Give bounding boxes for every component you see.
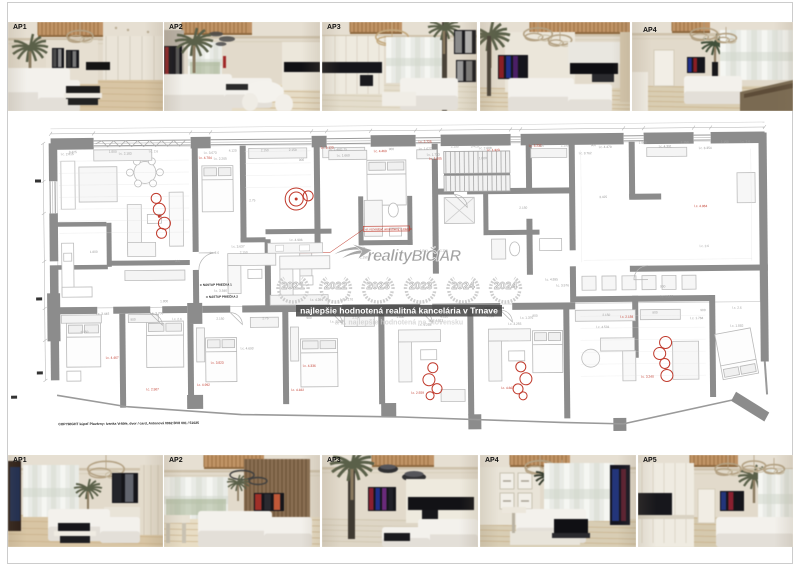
svg-text:l.c. 4.813: l.c. 4.813 [430,319,443,323]
svg-text:el. rozvádzač umiestnený v zrk: el. rozvádzač umiestnený v zrkadle [365,227,412,231]
svg-text:900: 900 [175,259,181,263]
svg-text:l.c. 4.391: l.c. 4.391 [659,144,672,148]
svg-text:2.75: 2.75 [249,198,255,202]
svg-text:l.c. 3.846: l.c. 3.846 [214,289,227,293]
svg-text:l.c. 4.467: l.c. 4.467 [106,356,119,360]
svg-text:900: 900 [306,316,312,320]
svg-text:900: 900 [299,158,305,162]
svg-text:2.150: 2.150 [352,315,360,319]
svg-text:l.c. 1.162: l.c. 1.162 [660,294,673,298]
svg-text:l.c. 3.448: l.c. 3.448 [96,312,109,316]
svg-text:COPYRIGHT kúpeľ Plavárny: Ivan: COPYRIGHT kúpeľ Plavárny: Ivanka Vráble,… [58,421,199,426]
svg-text:l.c. 1.660: l.c. 1.660 [337,153,350,157]
svg-text:◄ SMER VÝŢAH: ◄ SMER VÝŢAH [480,305,504,310]
svg-text:l.c. 2.205: l.c. 2.205 [214,157,227,161]
svg-text:4.120: 4.120 [486,314,494,318]
svg-text:2.150: 2.150 [451,144,459,148]
svg-text:l.c. 3.354: l.c. 3.354 [699,146,712,150]
svg-text:l.c. 1.220: l.c. 1.220 [330,320,343,324]
svg-text:l.c. 2.6: l.c. 2.6 [210,251,220,255]
svg-text:900: 900 [700,308,706,312]
svg-text:l.c. 4.170: l.c. 4.170 [340,297,353,301]
svg-text:l.c. 2.6: l.c. 2.6 [172,317,182,321]
svg-text:2.150: 2.150 [216,317,224,321]
svg-text:l.c. 4.984: l.c. 4.984 [694,204,707,208]
svg-text:l.c. 1.605: l.c. 1.605 [429,157,442,161]
svg-text:1.800: 1.800 [479,156,487,160]
svg-text:l.c. 4.992: l.c. 4.992 [197,383,210,387]
svg-text:l.c. 3.123: l.c. 3.123 [321,146,334,150]
svg-text:l.c. 2.6: l.c. 2.6 [741,140,751,144]
svg-text:2.75: 2.75 [262,316,268,320]
svg-text:3.425: 3.425 [599,195,607,199]
svg-text:1.800: 1.800 [396,315,404,319]
svg-text:l.c. 1.784: l.c. 1.784 [690,316,703,320]
svg-text:l.c. 1.323: l.c. 1.323 [487,148,500,152]
svg-text:l.c. 3.823: l.c. 3.823 [211,361,224,365]
svg-text:l.c. 1.376: l.c. 1.376 [520,316,533,320]
svg-text:l.c. 2.183: l.c. 2.183 [119,152,132,156]
svg-text:2.150: 2.150 [80,330,88,334]
svg-text:l.c. 2.559: l.c. 2.559 [411,391,424,395]
svg-text:l.c. 2.6: l.c. 2.6 [149,149,159,153]
svg-text:1.800: 1.800 [420,249,428,253]
svg-text:l.c. 4.784: l.c. 4.784 [199,156,212,160]
svg-text:900: 900 [389,147,395,151]
svg-text:1.800: 1.800 [639,141,647,145]
svg-text:4.120: 4.120 [229,149,237,153]
svg-text:2.150: 2.150 [440,249,448,253]
svg-text:900: 900 [652,311,658,315]
svg-text:2.150: 2.150 [561,143,569,147]
svg-text:l.c. 4.336: l.c. 4.336 [303,364,316,368]
svg-text:1.800: 1.800 [109,150,117,154]
svg-text:l.c. 3.255: l.c. 3.255 [508,322,521,326]
svg-text:l.c. 4.182: l.c. 4.182 [291,388,304,392]
svg-text:◄ NÁSTUP PRIEČKA 2: ◄ NÁSTUP PRIEČKA 2 [205,294,238,299]
svg-text:l.c. 4.394: l.c. 4.394 [310,298,323,302]
svg-text:1.800: 1.800 [160,299,168,303]
svg-text:2.150: 2.150 [721,140,729,144]
svg-text:l.c. 3.673: l.c. 3.673 [204,151,217,155]
svg-text:2.150: 2.150 [681,140,689,144]
svg-text:900: 900 [130,318,136,322]
svg-text:l.c. 3.708: l.c. 3.708 [150,311,163,315]
svg-text:l.c. 3.637: l.c. 3.637 [232,244,245,248]
svg-text:l.c. 4.268: l.c. 4.268 [418,323,431,327]
svg-text:2.150: 2.150 [289,148,297,152]
svg-text:l.c. 2.6: l.c. 2.6 [732,306,742,310]
svg-text:l.c. 4.693: l.c. 4.693 [241,346,254,350]
svg-text:l.c. 4.531: l.c. 4.531 [596,325,609,329]
svg-text:◄ NÁSTUP PRIEČKA 1: ◄ NÁSTUP PRIEČKA 1 [199,282,232,287]
svg-text:l.c. 1.677: l.c. 1.677 [419,147,432,151]
svg-text:l.c. 3.762: l.c. 3.762 [579,151,592,155]
svg-text:2.150: 2.150 [240,250,248,254]
svg-text:l.c. 2.6: l.c. 2.6 [700,244,710,248]
svg-text:900: 900 [591,143,597,147]
svg-text:l.c. 2.184: l.c. 2.184 [620,315,633,319]
svg-text:3.425: 3.425 [471,144,479,148]
svg-text:2.75: 2.75 [341,148,347,152]
svg-text:900: 900 [660,284,666,288]
svg-text:2.150: 2.150 [602,313,610,317]
svg-text:2.150: 2.150 [261,148,269,152]
svg-text:l.c. 2.507: l.c. 2.507 [146,387,159,391]
svg-text:l.c. 2.815: l.c. 2.815 [61,152,74,156]
svg-text:l.c. 3.240: l.c. 3.240 [641,375,654,379]
svg-text:l.c. 2.725: l.c. 2.725 [419,140,432,144]
svg-text:l.c. 4.463: l.c. 4.463 [374,149,387,153]
svg-text:l.c. 4.470: l.c. 4.470 [599,145,612,149]
svg-text:l.c. 3.576: l.c. 3.576 [556,283,569,287]
svg-text:l.c. 4.662: l.c. 4.662 [501,386,514,390]
svg-text:1.800: 1.800 [90,250,98,254]
svg-text:l.c. 4.996: l.c. 4.996 [290,238,303,242]
svg-text:2.150: 2.150 [519,206,527,210]
svg-text:l.c. 3.232: l.c. 3.232 [529,144,542,148]
svg-text:2.150: 2.150 [360,255,368,259]
svg-text:l.c. 4.895: l.c. 4.895 [545,277,558,281]
svg-text:l.c. 1.882: l.c. 1.882 [730,324,743,328]
